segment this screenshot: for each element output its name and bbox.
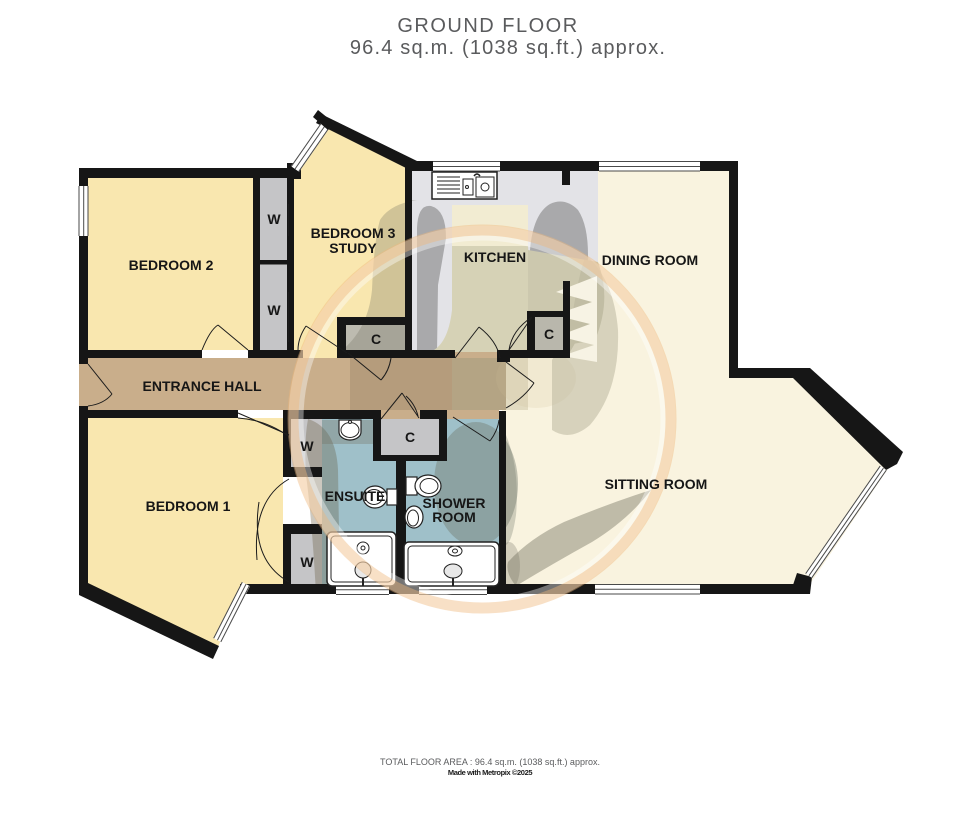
svg-text:C: C (405, 429, 415, 445)
svg-text:DINING ROOM: DINING ROOM (602, 252, 698, 268)
svg-text:BEDROOM 2: BEDROOM 2 (129, 257, 214, 273)
svg-text:C: C (544, 326, 554, 342)
svg-text:KITCHEN: KITCHEN (464, 249, 526, 265)
svg-text:96.4 sq.m. (1038 sq.ft.) appro: 96.4 sq.m. (1038 sq.ft.) approx. (350, 37, 666, 59)
svg-text:STUDY: STUDY (329, 240, 377, 256)
svg-text:ENTRANCE HALL: ENTRANCE HALL (143, 378, 262, 394)
svg-text:W: W (300, 554, 314, 570)
svg-text:C: C (371, 331, 381, 347)
svg-text:Made with Metropix ©2025: Made with Metropix ©2025 (448, 768, 533, 777)
svg-text:TOTAL FLOOR AREA : 96.4 sq.m.: TOTAL FLOOR AREA : 96.4 sq.m. (1038 sq.f… (380, 757, 600, 767)
svg-text:W: W (267, 211, 281, 227)
svg-text:GROUND FLOOR: GROUND FLOOR (397, 15, 578, 37)
svg-text:SITTING ROOM: SITTING ROOM (605, 476, 708, 492)
svg-text:ROOM: ROOM (432, 509, 476, 525)
svg-text:W: W (300, 438, 314, 454)
svg-text:ENSUITE: ENSUITE (325, 488, 386, 504)
svg-text:W: W (267, 302, 281, 318)
svg-text:BEDROOM 3: BEDROOM 3 (311, 225, 396, 241)
svg-text:BEDROOM 1: BEDROOM 1 (146, 498, 231, 514)
